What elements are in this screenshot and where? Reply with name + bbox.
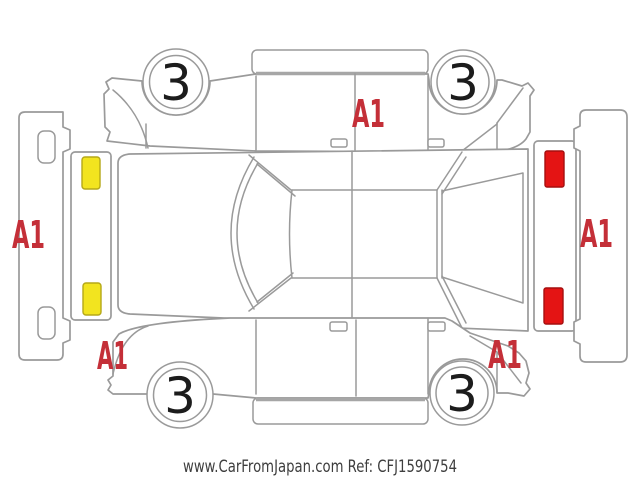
taillight-lower bbox=[544, 288, 563, 324]
mark-front-bumper: A1 bbox=[12, 213, 45, 257]
wheel-near-front: 3 bbox=[147, 362, 213, 428]
side-view-far: 3 3 A1 bbox=[104, 49, 534, 152]
headlight-lower bbox=[83, 283, 101, 315]
body-top-view bbox=[118, 149, 528, 331]
taillight-upper bbox=[545, 151, 564, 187]
near-door-handle-2 bbox=[428, 322, 445, 331]
diagram-canvas: 3 3 A1 A1 bbox=[0, 0, 640, 480]
mark-near-side-front: A1 bbox=[97, 334, 128, 378]
mark-near-side-rear: A1 bbox=[488, 333, 522, 377]
car-condition-diagram: 3 3 A1 A1 bbox=[0, 0, 640, 480]
watermark-text: www.CarFromJapan.com Ref: CFJ1590754 bbox=[183, 457, 457, 477]
wheel-grade: 3 bbox=[446, 365, 478, 423]
far-door-handle-1 bbox=[331, 139, 347, 147]
far-door-handle-2 bbox=[428, 139, 444, 147]
mark-rear-bumper: A1 bbox=[580, 212, 613, 256]
near-rocker-band bbox=[253, 398, 428, 424]
front-panel-lamp-lower bbox=[38, 307, 55, 339]
mark-far-side: A1 bbox=[352, 92, 385, 136]
wheel-far-front: 3 bbox=[143, 49, 209, 115]
front-panel-lamp-upper bbox=[38, 131, 55, 163]
wheel-far-rear: 3 bbox=[431, 50, 495, 114]
wheel-grade: 3 bbox=[164, 367, 196, 425]
near-door-handle-1 bbox=[330, 322, 347, 331]
wheel-grade: 3 bbox=[160, 54, 192, 112]
headlight-upper bbox=[82, 157, 100, 189]
wheel-grade: 3 bbox=[447, 54, 479, 112]
far-rocker-band bbox=[252, 50, 428, 74]
wheel-near-rear: 3 bbox=[430, 361, 494, 425]
side-view-near: 3 3 A1 A1 bbox=[97, 318, 530, 428]
